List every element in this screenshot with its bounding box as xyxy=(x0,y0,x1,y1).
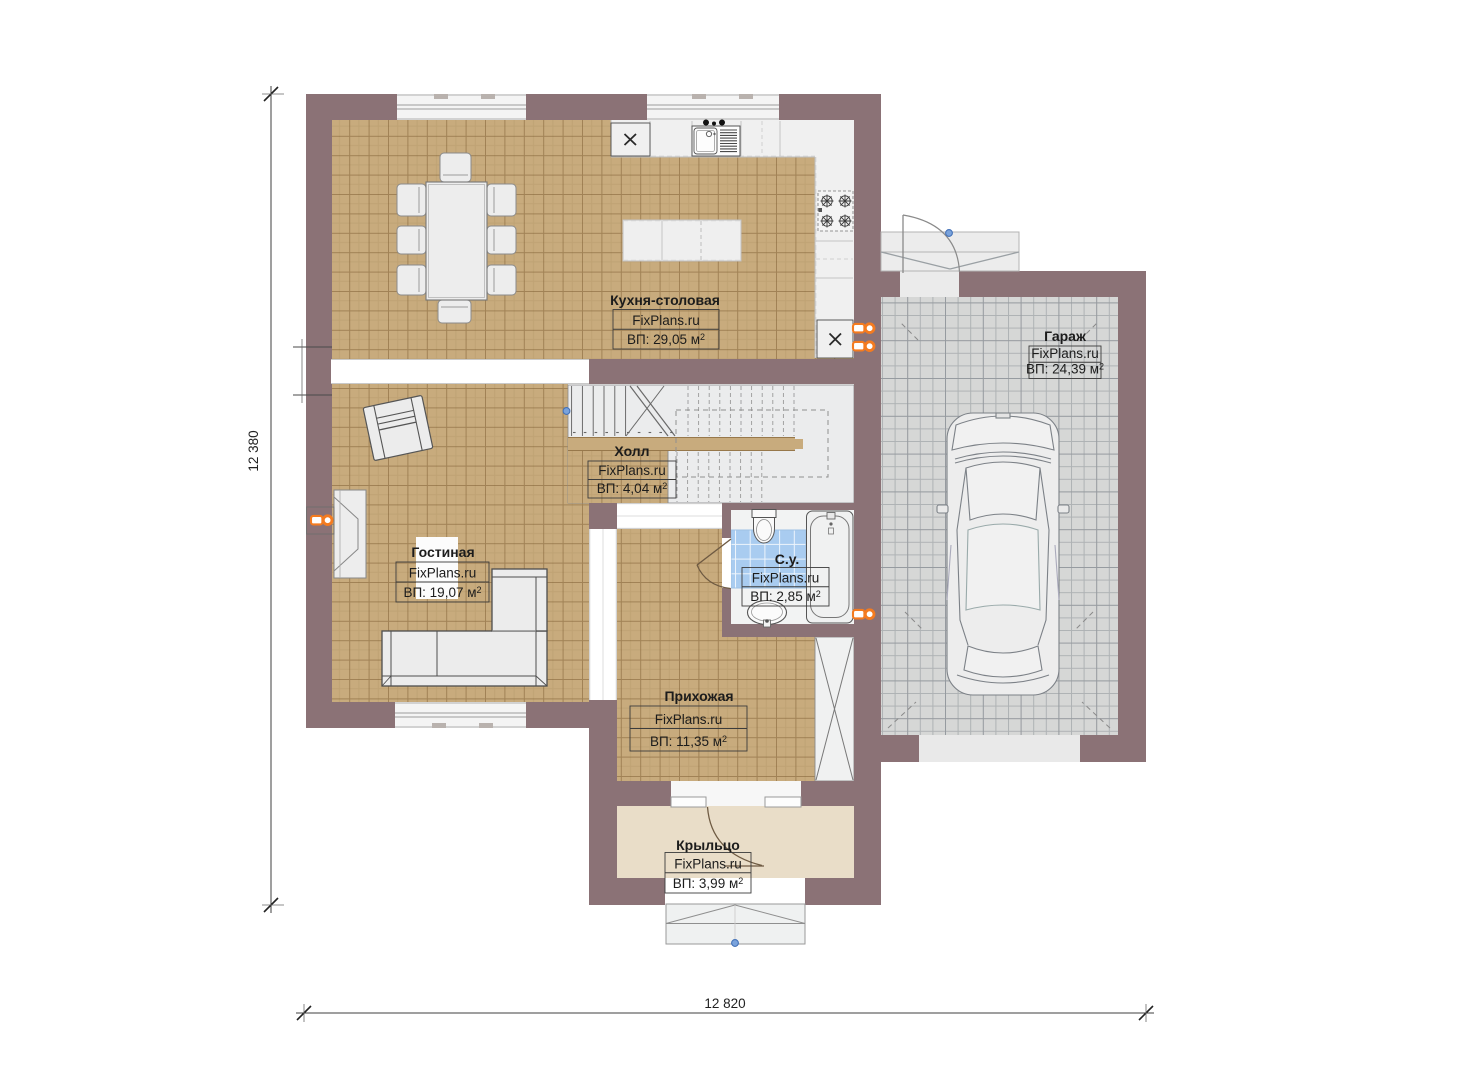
svg-text:FixPlans.ru: FixPlans.ru xyxy=(1031,346,1099,361)
svg-text:Гараж: Гараж xyxy=(1044,328,1087,344)
svg-text:FixPlans.ru: FixPlans.ru xyxy=(674,856,742,871)
svg-text:ВП: 3,99 м2: ВП: 3,99 м2 xyxy=(673,876,744,891)
svg-text:ВП: 19,07 м2: ВП: 19,07 м2 xyxy=(403,585,481,600)
svg-text:Гостиная: Гостиная xyxy=(411,544,474,560)
svg-text:FixPlans.ru: FixPlans.ru xyxy=(598,463,666,478)
svg-text:FixPlans.ru: FixPlans.ru xyxy=(752,570,820,585)
svg-text:Крыльцо: Крыльцо xyxy=(676,837,740,853)
svg-text:Прихожая: Прихожая xyxy=(664,688,733,704)
svg-text:Холл: Холл xyxy=(614,443,649,459)
svg-text:ВП: 11,35 м2: ВП: 11,35 м2 xyxy=(650,734,727,749)
svg-text:С.у.: С.у. xyxy=(775,551,799,567)
svg-text:12 820: 12 820 xyxy=(704,996,745,1011)
svg-text:FixPlans.ru: FixPlans.ru xyxy=(632,313,700,328)
svg-text:12 380: 12 380 xyxy=(246,430,261,471)
svg-text:ВП: 24,39 м2: ВП: 24,39 м2 xyxy=(1026,362,1104,377)
svg-text:Кухня-столовая: Кухня-столовая xyxy=(610,292,720,308)
svg-text:FixPlans.ru: FixPlans.ru xyxy=(655,712,723,727)
svg-text:ВП: 4,04 м2: ВП: 4,04 м2 xyxy=(597,481,668,496)
svg-text:ВП: 2,85 м2: ВП: 2,85 м2 xyxy=(750,589,821,604)
svg-text:FixPlans.ru: FixPlans.ru xyxy=(409,566,477,581)
svg-text:ВП: 29,05 м2: ВП: 29,05 м2 xyxy=(627,332,705,347)
